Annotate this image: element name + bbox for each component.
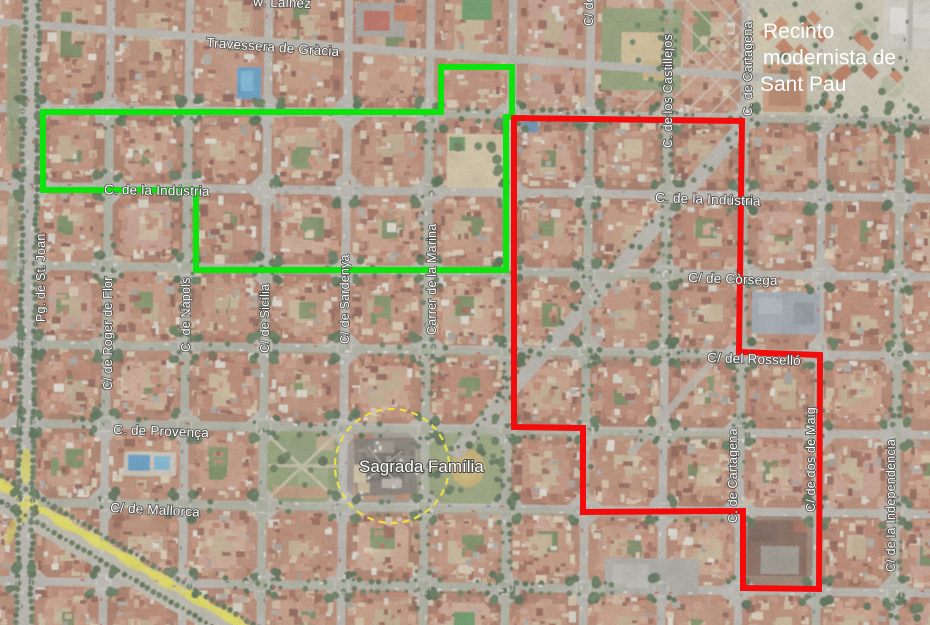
svg-text:Sagrada Família: Sagrada Família <box>359 457 484 476</box>
svg-text:C/ de Padilla: C/ de Padilla <box>582 0 596 26</box>
svg-text:C. de Cartagena: C. de Cartagena <box>741 21 755 116</box>
svg-text:Recinto: Recinto <box>763 20 834 43</box>
svg-text:Sant Pau: Sant Pau <box>760 73 846 96</box>
svg-text:Pg. de St. Joan: Pg. de St. Joan <box>34 234 48 322</box>
svg-text:Carrer de la Marina: Carrer de la Marina <box>425 224 439 335</box>
svg-text:C/ de Sicília: C/ de Sicília <box>258 284 272 353</box>
svg-text:C. de la Indústria: C. de la Indústria <box>104 182 210 199</box>
svg-text:C/ de Còrsega: C/ de Còrsega <box>688 270 778 288</box>
svg-text:C. de Nàpols: C. de Nàpols <box>179 277 193 352</box>
svg-text:C/ de Sardenya: C/ de Sardenya <box>338 254 352 344</box>
svg-text:modernista de: modernista de <box>763 47 896 70</box>
svg-text:C. de Cartagena: C. de Cartagena <box>726 428 740 523</box>
svg-text:C. de los Castillejos: C. de los Castillejos <box>661 34 675 148</box>
svg-text:C/ de dos de Maig: C/ de dos de Maig <box>804 407 818 512</box>
svg-text:C/ de Roger de Flor: C/ de Roger de Flor <box>101 276 115 390</box>
svg-text:C/ de la Independència: C/ de la Independència <box>884 439 898 572</box>
